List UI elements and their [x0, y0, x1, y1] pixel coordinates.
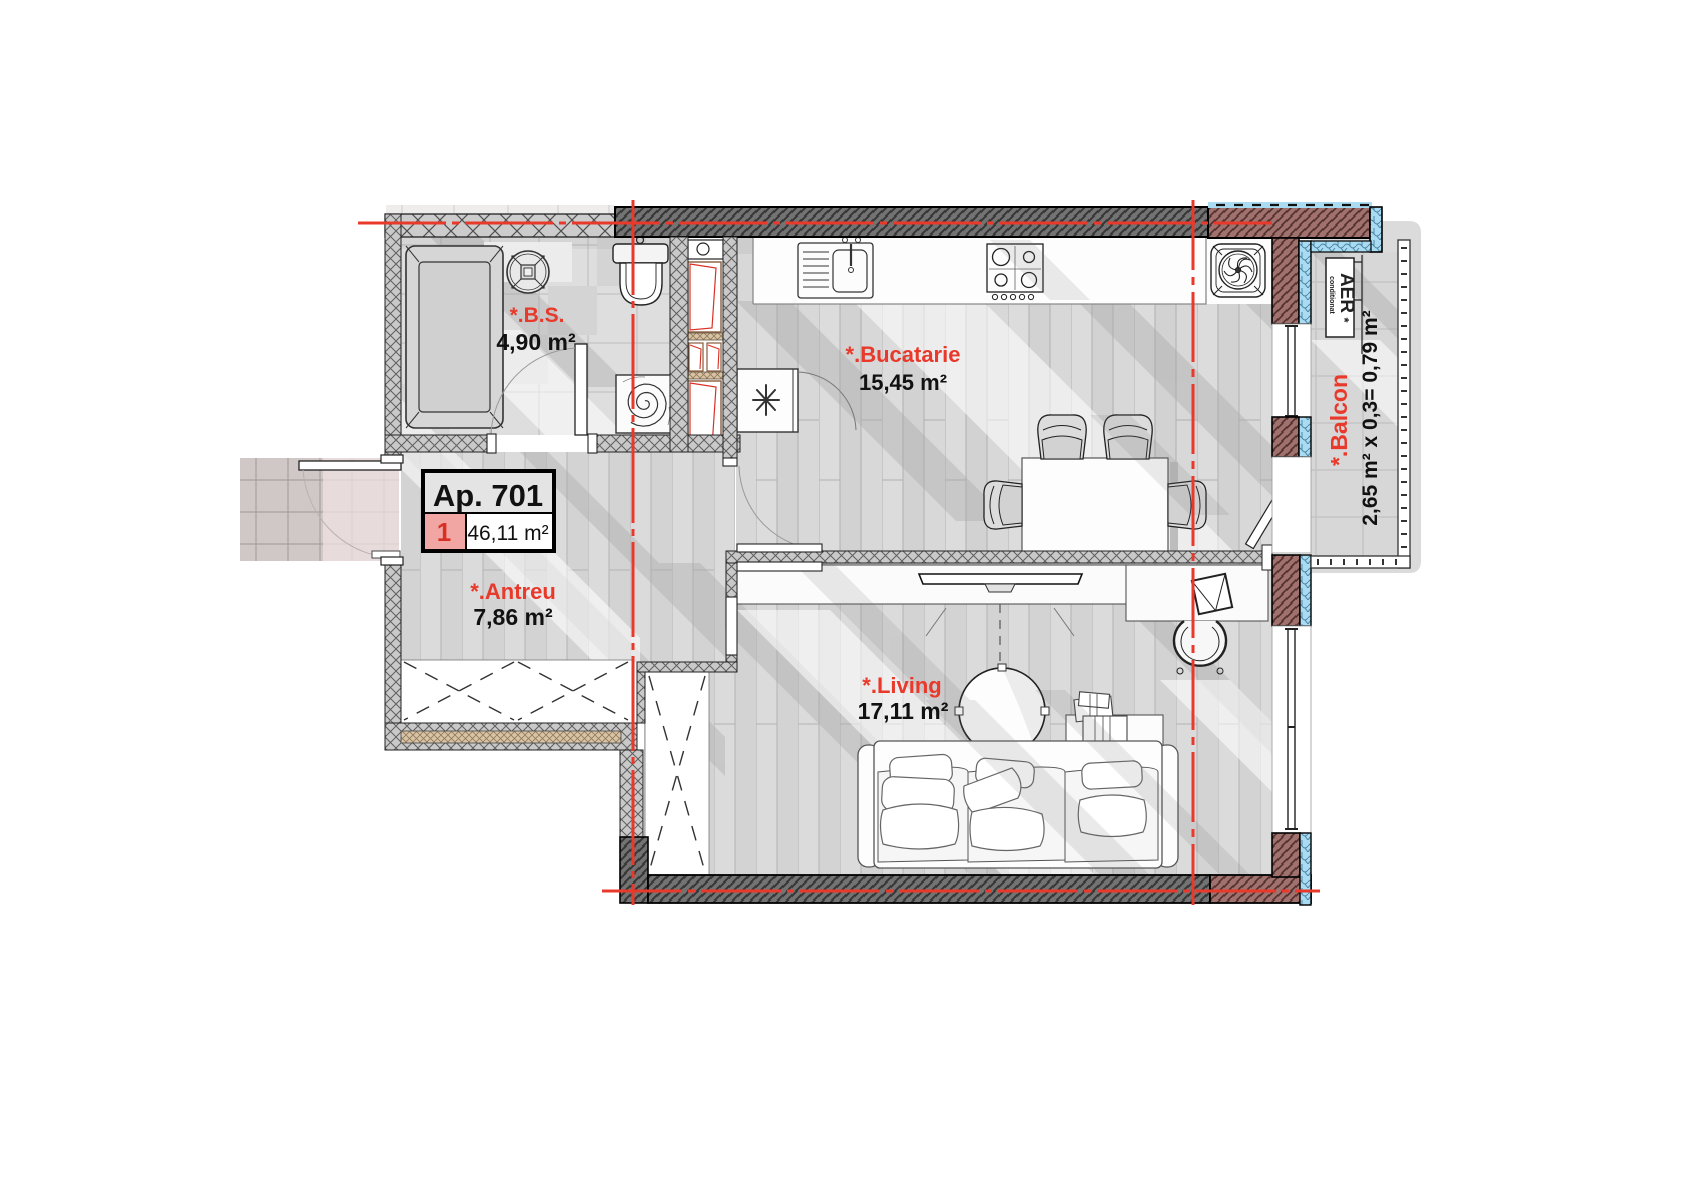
- svg-text:conditionat: conditionat: [1328, 276, 1335, 314]
- svg-text:*.B.S.: *.B.S.: [510, 304, 565, 327]
- svg-text:4,90 m²: 4,90 m²: [496, 329, 576, 355]
- svg-text:AER: AER: [1336, 273, 1357, 313]
- svg-text:46,11 m²: 46,11 m²: [467, 522, 548, 545]
- svg-text:*.Balcon: *.Balcon: [1326, 374, 1352, 466]
- svg-text:Ap. 701: Ap. 701: [433, 478, 543, 513]
- svg-text:15,45 m²: 15,45 m²: [859, 370, 947, 395]
- svg-text:17,11 m²: 17,11 m²: [858, 698, 949, 724]
- svg-text:7,86 m²: 7,86 m²: [473, 604, 553, 630]
- svg-text:2,65 m² x 0,3= 0,79 m²: 2,65 m² x 0,3= 0,79 m²: [1359, 310, 1382, 525]
- svg-text:1: 1: [437, 517, 451, 547]
- svg-text:*.Antreu: *.Antreu: [470, 579, 556, 604]
- svg-text:*.Bucatarie: *.Bucatarie: [846, 342, 961, 367]
- svg-text:*.Living: *.Living: [862, 673, 941, 698]
